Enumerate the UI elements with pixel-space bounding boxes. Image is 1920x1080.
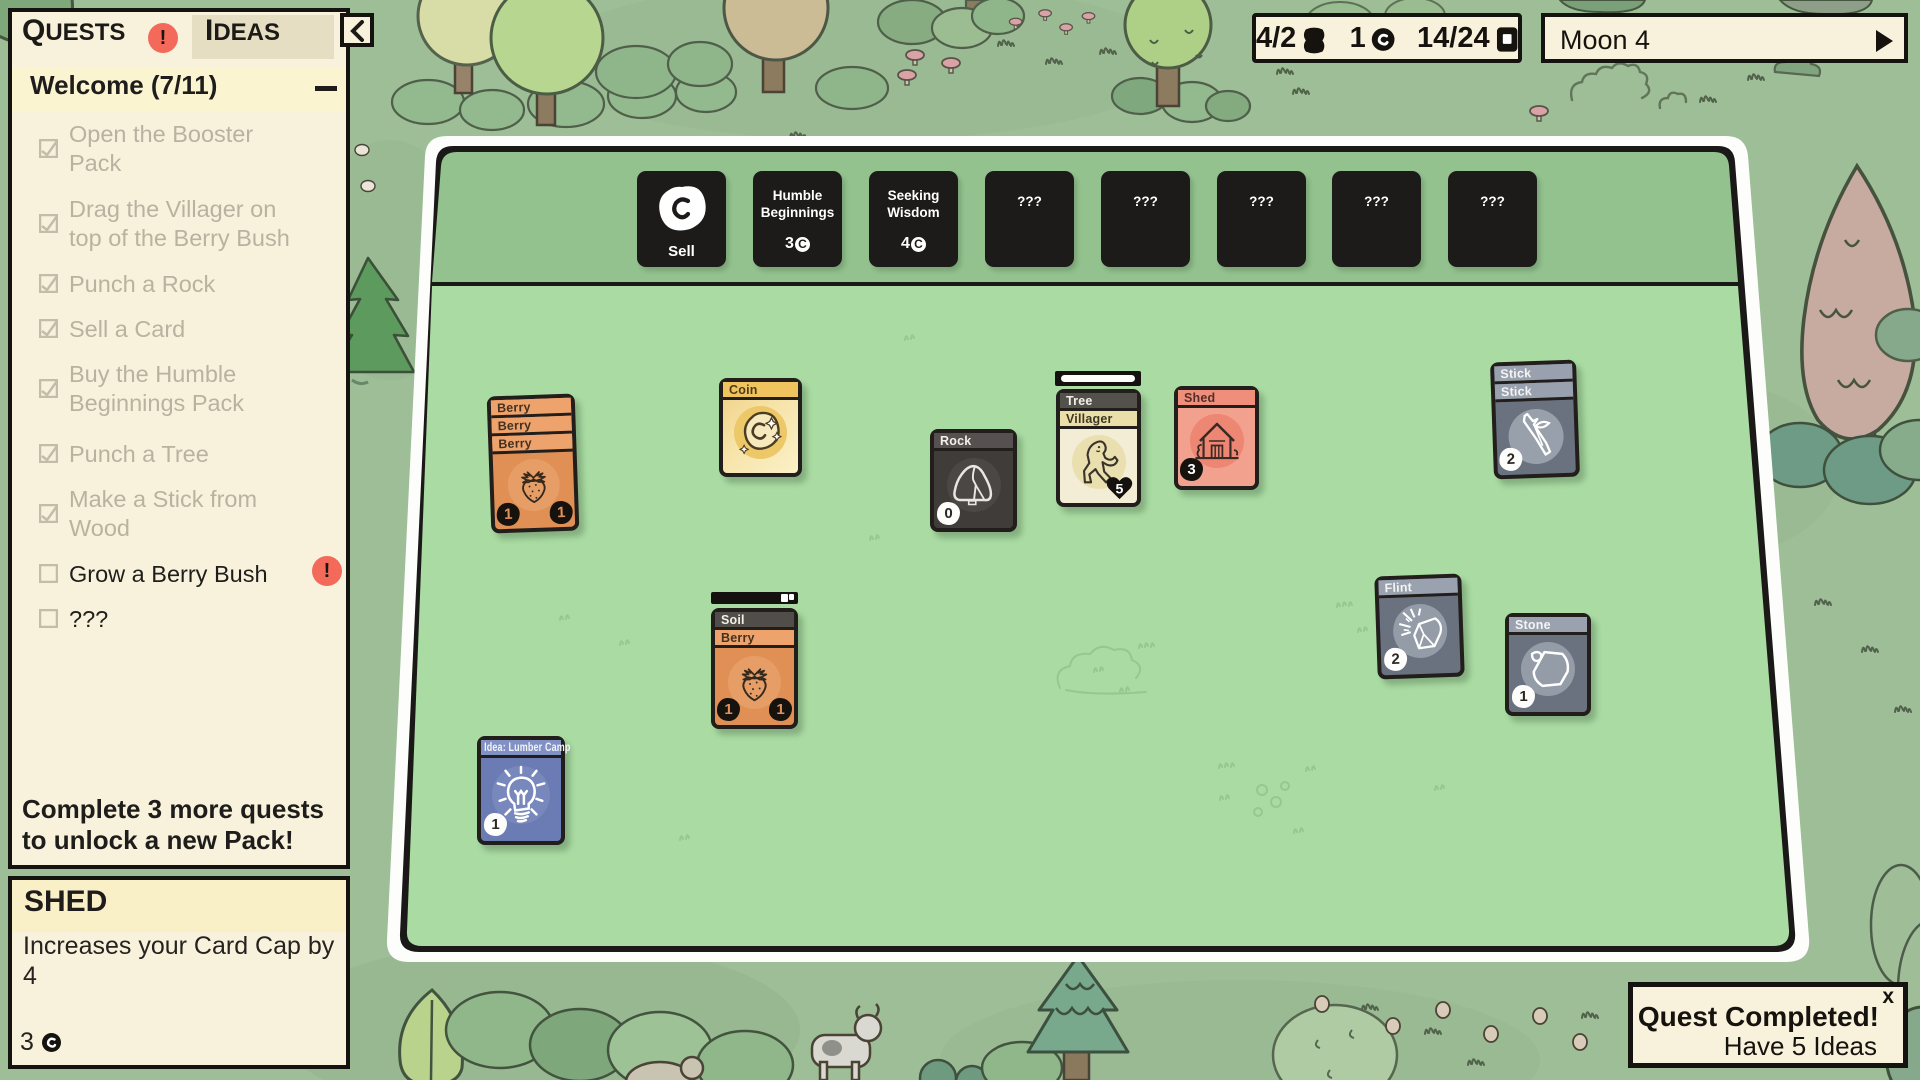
svg-text:5: 5 bbox=[1116, 481, 1124, 497]
